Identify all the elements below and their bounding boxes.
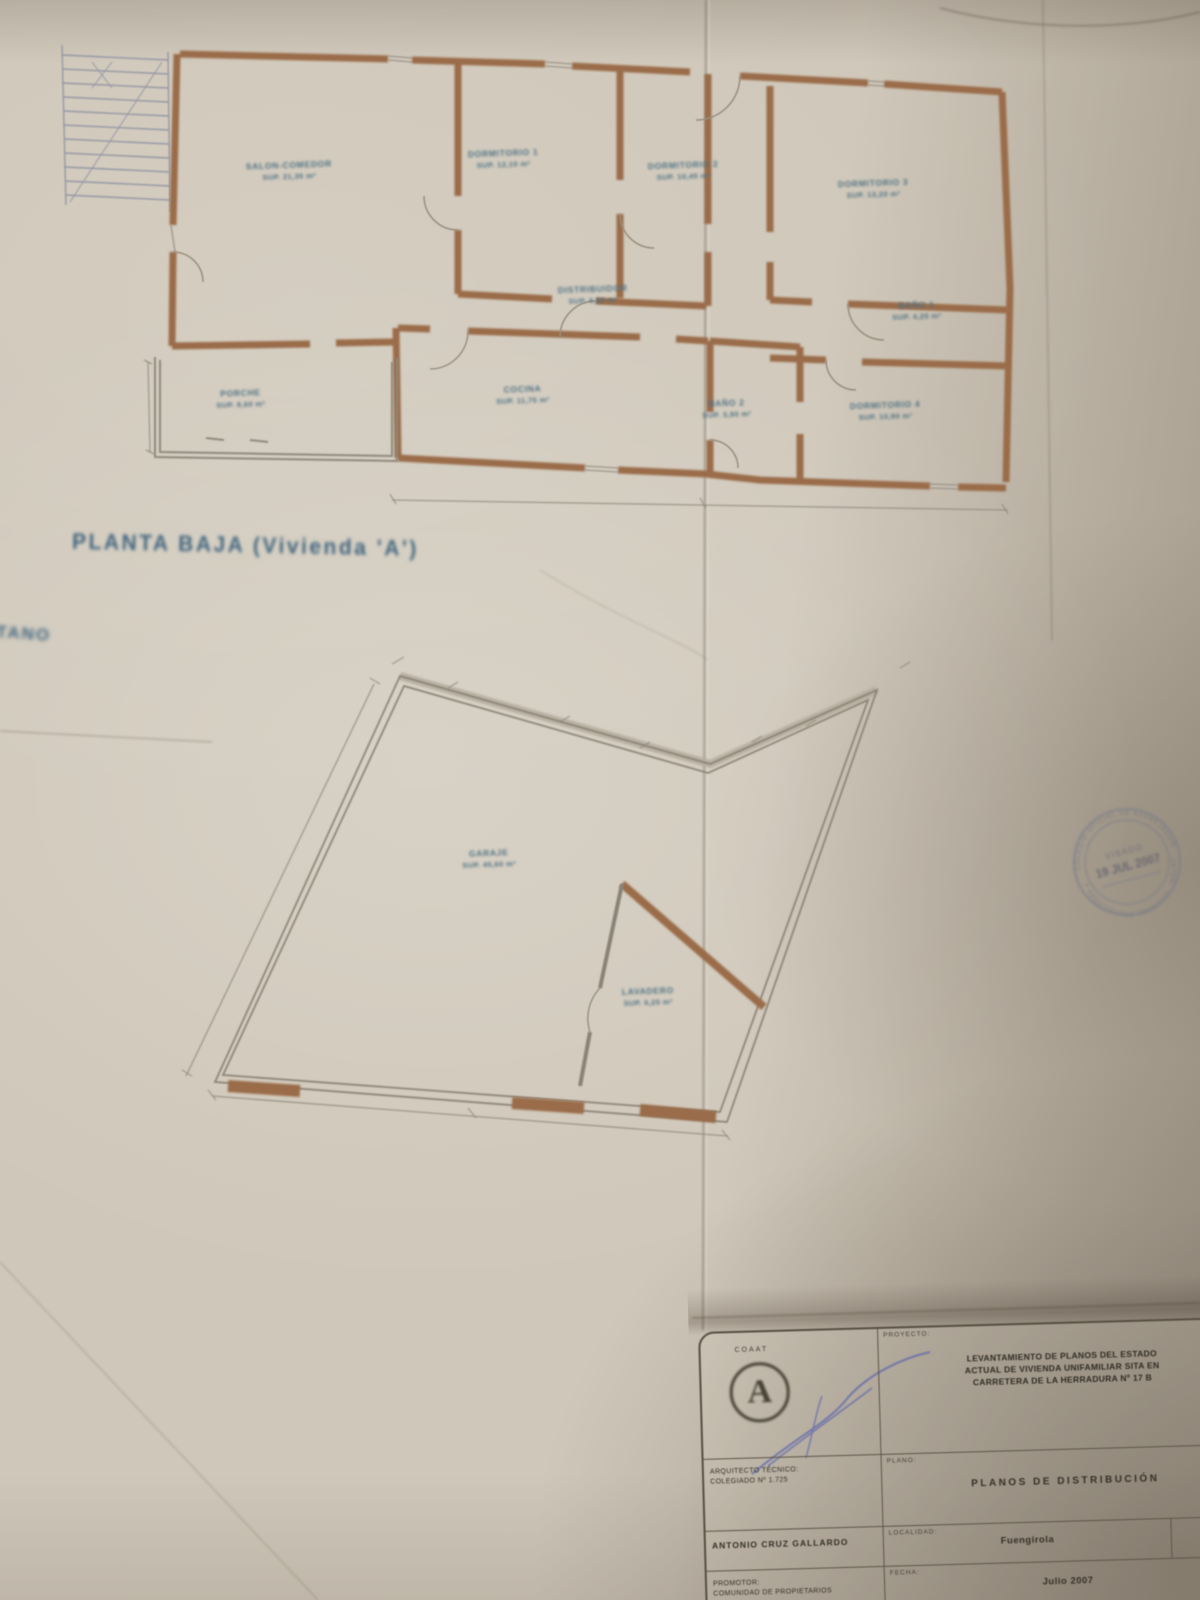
staircase	[62, 45, 170, 212]
date-value: Julio 2007	[885, 1571, 1200, 1592]
technician-cell: ARQUITECTO TÉCNICO: COLEGIADO Nº 1.725	[704, 1455, 884, 1531]
plano-label: PLANO:	[887, 1457, 917, 1465]
logo-cell: COAAT A	[700, 1329, 881, 1459]
room-label: SALON-COMEDORSUP. 21,35 m²	[246, 159, 333, 184]
dimension-marks	[144, 360, 1008, 514]
project-label: PROYECTO:	[883, 1331, 930, 1339]
room-label: BAÑO 2SUP. 3,90 m²	[702, 397, 752, 421]
room-label: DISTRIBUIDORSUP. 6,80 m²	[558, 283, 629, 307]
plano-cell: PLANO: PLANOS DE DISTRIBUCIÓN	[882, 1445, 1200, 1526]
logo-caption: COAAT	[734, 1346, 768, 1354]
title-block-row-plano: ARQUITECTO TÉCNICO: COLEGIADO Nº 1.725 P…	[704, 1445, 1200, 1532]
approval-stamp: COLEGIO OFICIAL DE APAREJADORES Y ARQUIT…	[1062, 797, 1193, 931]
plano-title: PLANOS DE DISTRIBUCIÓN	[882, 1471, 1200, 1492]
logo-letter: A	[747, 1373, 773, 1412]
room-label: GARAJESUP. 45,60 m²	[462, 847, 517, 871]
room-label: DORMITORIO 3SUP. 13,20 m²	[838, 177, 909, 201]
photographed-blueprint: COLEGIO OFICIAL DE APAREJADORES Y ARQUIT…	[0, 0, 1200, 1600]
promoter-value: COMUNIDAD DE PROPIETARIOS	[713, 1586, 832, 1599]
technician-name-cell: ANTONIO CRUZ GALLARDO	[706, 1527, 885, 1571]
technician-name: ANTONIO CRUZ GALLARDO	[712, 1537, 849, 1551]
room-label: BAÑO 1SUP. 4,25 m²	[892, 299, 942, 323]
room-label: COCINASUP. 11,75 m²	[496, 383, 550, 407]
locality-cell: LOCALIDAD: Fuengirola	[884, 1519, 1173, 1566]
room-label: DORMITORIO 1SUP. 12,10 m²	[468, 147, 539, 171]
project-cell: PROYECTO: LEVANTAMIENTO DE PLANOS DEL ES…	[878, 1319, 1200, 1454]
title-block: COAAT A PROYECTO: LEVANTAMIENTO DE PLANO…	[698, 1317, 1200, 1600]
room-label: PORCHESUP. 8,60 m²	[216, 387, 266, 411]
scale-cell: 1/50	[1171, 1517, 1200, 1558]
room-label: DORMITORIO 2SUP. 10,45 m²	[648, 159, 719, 183]
architects-college-logo: A	[729, 1361, 791, 1423]
date-label: FECHA:	[890, 1569, 920, 1577]
title-block-row-project: COAAT A PROYECTO: LEVANTAMIENTO DE PLANO…	[700, 1319, 1200, 1460]
room-label: DORMITORIO 4SUP. 10,90 m²	[850, 399, 921, 423]
stamp-ring-bottom: Y ARQUITECTOS TÉCNICOS · MÁLAGA	[1078, 844, 1189, 929]
promoter-cell: PROMOTOR: COMUNIDAD DE PROPIETARIOS	[707, 1567, 887, 1600]
lower-floor-plan	[182, 657, 910, 1140]
technician-number: COLEGIADO Nº 1.725	[710, 1475, 799, 1487]
project-description: LEVANTAMIENTO DE PLANOS DEL ESTADO ACTUA…	[893, 1345, 1200, 1390]
svg-text:Y ARQUITECTOS TÉCNICOS · MÁLAG: Y ARQUITECTOS TÉCNICOS · MÁLAGA	[1078, 844, 1189, 929]
room-label: LAVADEROSUP. 6,25 m²	[622, 985, 675, 1009]
locality-label: LOCALIDAD:	[889, 1528, 938, 1536]
